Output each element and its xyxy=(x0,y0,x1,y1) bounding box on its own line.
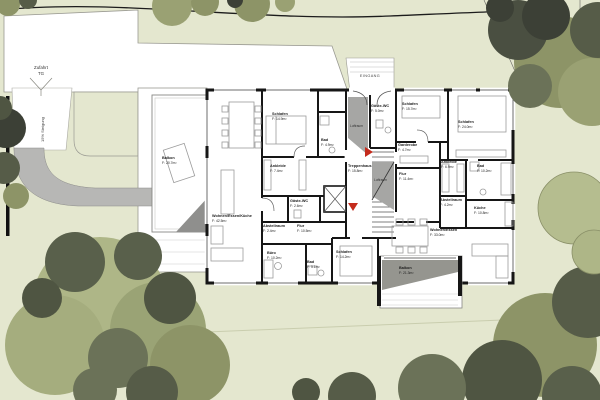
room-label-abstellraum-2: AbstellraumF: 4.2m² xyxy=(440,198,462,207)
room-label-buero: BüroF: 10.2m² xyxy=(267,251,282,260)
driveway-label: Zufahrt TG xyxy=(24,65,58,76)
tree-right-middle xyxy=(538,172,600,274)
entrance-label: EINGANG xyxy=(346,74,394,78)
room-label-gaeste-wc-2: Gäste-WCF: 5.0m² xyxy=(371,104,389,113)
balcony-left xyxy=(152,95,209,232)
room-label-kueche: KücheF: 10.8m² xyxy=(474,206,489,215)
green-island xyxy=(74,92,138,156)
elevator xyxy=(324,186,346,212)
ramp-slope-label: 15% Steigung xyxy=(40,117,45,142)
room-label-ankleide-1: AnkleideF: 7.4m² xyxy=(270,164,286,173)
room-label-ankleide-2: AnkleideF: 6.9m² xyxy=(441,160,457,169)
room-label-wohnen-essen: Wohnen/EssenF: 33.0m² xyxy=(430,228,457,237)
room-label-bad-3: BadF: 10.2m² xyxy=(477,164,492,173)
room-label-abstellraum-1: AbstellraumF: 2.4m² xyxy=(263,224,285,233)
room-label-bad-2: BadF: 5.1m² xyxy=(307,260,320,269)
site-plan: Zufahrt TG 15% Steigung EINGANG Wohnen/E… xyxy=(0,0,600,400)
room-label-wohnen-essen-kueche: Wohnen/Essen/KücheF: 42.5m² xyxy=(212,214,252,223)
room-label-garderobe: GarderobeF: 4.7m² xyxy=(398,143,417,152)
room-label-balkon-west: BalkonF: 20.7m² xyxy=(162,156,177,165)
room-label-schlafen-4: SchlafenF: 24.0m² xyxy=(458,120,474,129)
room-label-luftraum-2: Luftraum xyxy=(374,178,387,182)
room-label-bad-1: BadF: 4.9m² xyxy=(321,138,334,147)
room-label-schlafen-3: SchlafenF: 15.7m² xyxy=(402,102,418,111)
room-label-flur-1: FlurF: 10.5m² xyxy=(297,224,312,233)
room-label-schlafen-1: SchlafenF: 14.9m² xyxy=(272,112,288,121)
room-label-flur-2: FlurF: 11.4m² xyxy=(399,172,413,181)
room-label-luftraum-1: Luftraum xyxy=(350,124,363,128)
room-label-schlafen-2: SchlafenF: 14.2m² xyxy=(336,250,352,259)
balcony-bottom xyxy=(377,254,462,308)
room-label-gaeste-wc-1: Gäste-WCF: 2.6m² xyxy=(290,199,308,208)
tree-top-left-corner xyxy=(0,0,37,16)
room-label-treppenhaus: TreppenhausF: 15.8m² xyxy=(348,164,372,173)
room-label-balkon-sued: BalkonF: 21.3m² xyxy=(399,266,414,275)
